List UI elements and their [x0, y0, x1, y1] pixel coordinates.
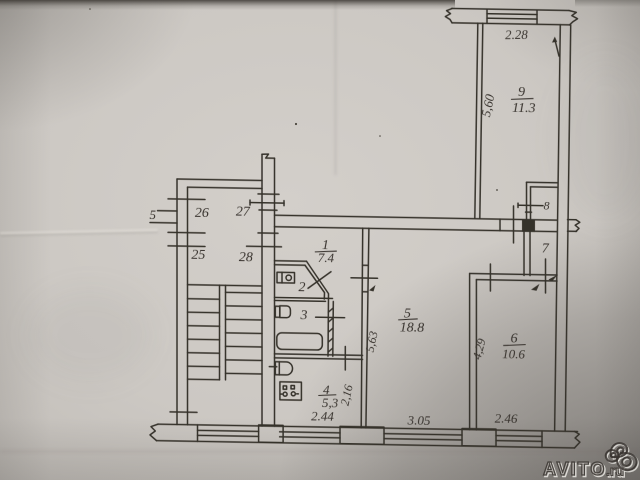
svg-text:10.6: 10.6	[502, 346, 525, 361]
svg-text:4,29: 4,29	[470, 337, 489, 361]
svg-text:.ru: .ru	[606, 463, 624, 479]
svg-text:11.3: 11.3	[512, 101, 535, 116]
svg-text:5: 5	[150, 207, 157, 222]
svg-text:3.05: 3.05	[407, 413, 431, 428]
svg-text:3: 3	[299, 308, 307, 323]
svg-text:9: 9	[518, 85, 525, 100]
svg-text:25: 25	[191, 248, 205, 263]
svg-text:6: 6	[511, 331, 518, 346]
svg-text:2,16: 2,16	[338, 383, 356, 407]
svg-text:2: 2	[298, 280, 305, 295]
svg-text:27: 27	[236, 204, 251, 219]
svg-text:26: 26	[195, 206, 209, 221]
svg-text:8: 8	[544, 198, 550, 212]
svg-text:2.28: 2.28	[505, 27, 529, 42]
svg-text:5,60: 5,60	[478, 92, 498, 118]
svg-text:5,63: 5,63	[363, 330, 381, 354]
svg-text:28: 28	[239, 250, 253, 265]
svg-text:7: 7	[542, 241, 550, 256]
svg-text:AVITO: AVITO	[543, 459, 606, 479]
svg-text:2.44: 2.44	[311, 408, 334, 423]
svg-text:18.8: 18.8	[400, 320, 424, 335]
svg-text:2.46: 2.46	[495, 410, 518, 425]
